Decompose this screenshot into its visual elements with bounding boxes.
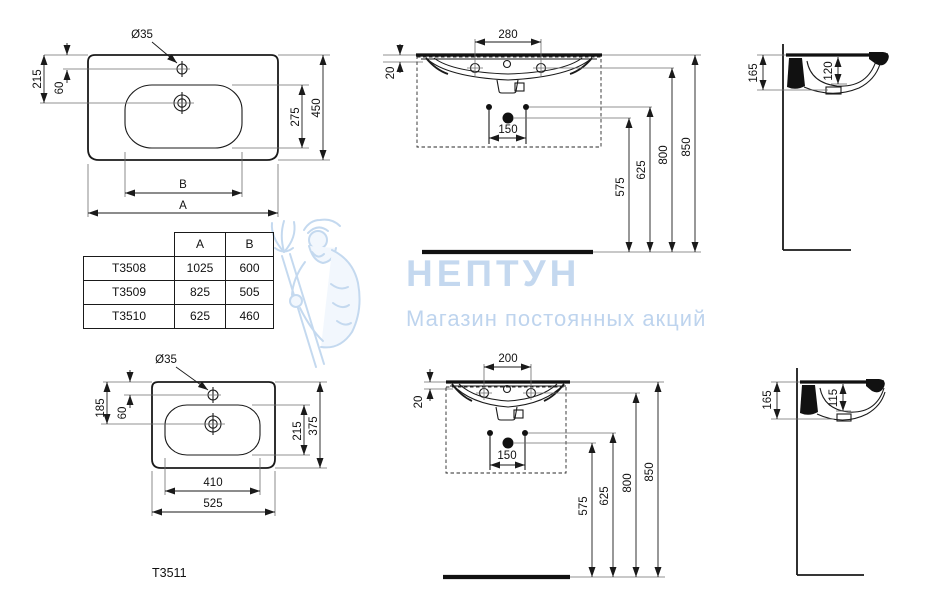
- dim-bowl-depth: 120: [823, 61, 835, 80]
- table-header-b: B: [226, 233, 274, 257]
- dim-bolt-spacing: 150: [497, 450, 516, 462]
- a-cell: 1025: [175, 256, 226, 280]
- dim-overall-depth: 375: [308, 416, 320, 435]
- dim-drain-height: 575: [615, 177, 627, 196]
- table-header-row: A B: [84, 233, 274, 257]
- dim-basin-depth: 275: [290, 107, 302, 126]
- dim-hole-dia: Ø35: [131, 29, 153, 41]
- dim-overall-width: A: [179, 200, 187, 212]
- model-cell: T3509: [84, 280, 175, 304]
- technical-drawing-sheet: НЕПТУН Магазин постоянных акций: [0, 0, 947, 599]
- dim-top-to-tap: 60: [54, 82, 66, 95]
- dim-drain-height: 575: [578, 496, 590, 515]
- model-cell: T3510: [84, 304, 175, 328]
- model-dimension-table: A B T3508 1025 600 T3509 825 505 T3510 6…: [83, 232, 274, 329]
- front-view-small: 200 20 150 575 625 800 850: [413, 353, 665, 577]
- b-cell: 600: [226, 256, 274, 280]
- dim-bolt-height: 625: [636, 160, 648, 179]
- dim-rim-height: 850: [681, 137, 693, 156]
- plan-view-small: Ø35 185 60 215 375 410 525: [95, 354, 327, 516]
- table-header-empty: [84, 233, 175, 257]
- b-cell: 460: [226, 304, 274, 328]
- dim-hole-dia: Ø35: [155, 354, 177, 366]
- dim-top-to-tap: 60: [117, 407, 129, 420]
- front-view-large: 280 20 150 575 625 800 850: [383, 29, 701, 252]
- a-cell: 825: [175, 280, 226, 304]
- dim-bolt-height: 625: [599, 486, 611, 505]
- dim-rim-height: 850: [644, 462, 656, 481]
- dim-overall-width: 525: [203, 498, 222, 510]
- model-caption: T3511: [152, 566, 187, 580]
- side-view-small: 165 115: [762, 368, 885, 575]
- dim-rim-thickness: 20: [385, 67, 397, 80]
- table-row: T3509 825 505: [84, 280, 274, 304]
- a-cell: 625: [175, 304, 226, 328]
- dim-basin-depth: 215: [292, 421, 304, 440]
- side-view-large: 165 120: [748, 44, 889, 250]
- table-row: T3508 1025 600: [84, 256, 274, 280]
- dim-apron-height: 165: [762, 390, 774, 409]
- dim-tap-height: 800: [622, 473, 634, 492]
- dim-bowl-depth: 115: [828, 389, 840, 407]
- dim-top-to-drain: 215: [32, 69, 44, 88]
- dim-basin-width: B: [179, 179, 187, 191]
- dim-top-to-drain: 185: [95, 398, 107, 417]
- b-cell: 505: [226, 280, 274, 304]
- table-header-a: A: [175, 233, 226, 257]
- dim-overall-depth: 450: [311, 98, 323, 117]
- dim-tap-height: 800: [658, 145, 670, 164]
- dim-tap-spacing: 280: [498, 29, 517, 41]
- table-row: T3510 625 460: [84, 304, 274, 328]
- dim-apron-height: 165: [748, 63, 760, 82]
- dim-basin-width: 410: [203, 477, 222, 489]
- dim-rim-thickness: 20: [413, 396, 425, 409]
- plan-view-large: Ø35 215 60 275 450 B A: [32, 29, 330, 217]
- model-cell: T3508: [84, 256, 175, 280]
- dim-tap-spacing: 200: [498, 353, 517, 365]
- dim-bolt-spacing: 150: [498, 124, 517, 136]
